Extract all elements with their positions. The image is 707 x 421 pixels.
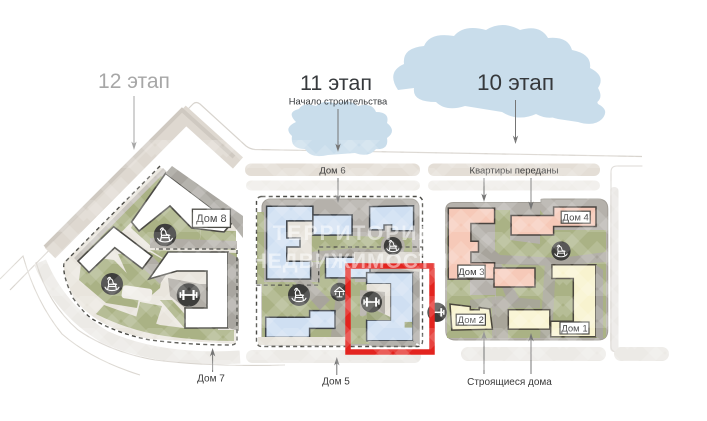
svg-text:11 этап: 11 этап [300,71,372,95]
svg-text:12 этап: 12 этап [98,70,170,93]
svg-text:10 этап: 10 этап [477,70,554,95]
svg-text:НЕДВИЖИМОСТИ: НЕДВИЖИМОСТИ [252,250,449,273]
svg-text:ТЕРРИТОРИЯ: ТЕРРИТОРИЯ [273,222,436,245]
svg-text:Дом 5: Дом 5 [322,377,350,388]
svg-text:Дом 7: Дом 7 [197,374,225,385]
svg-text:Строящиеся дома: Строящиеся дома [467,377,552,388]
svg-text:Начало строительства: Начало строительства [289,96,388,107]
